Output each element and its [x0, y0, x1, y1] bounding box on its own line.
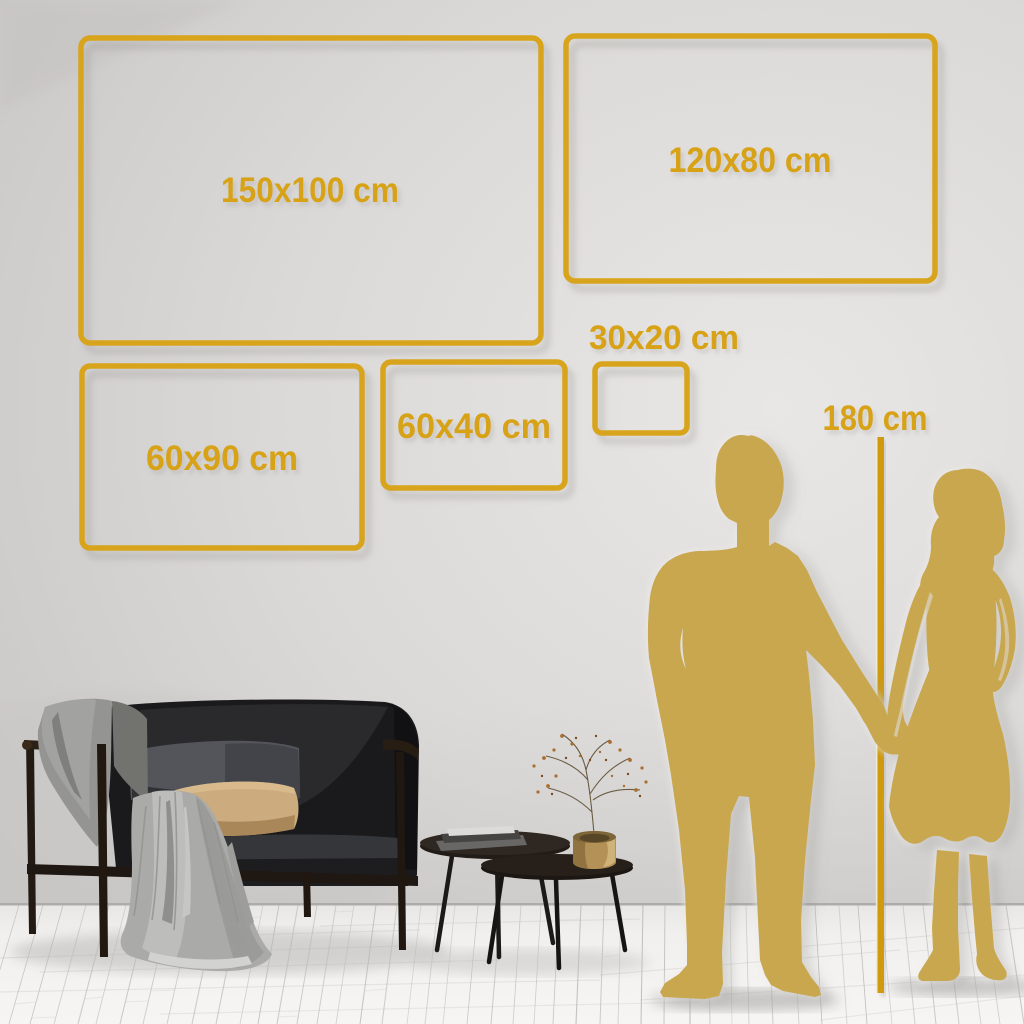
svg-text:60x90 cm: 60x90 cm [146, 438, 298, 478]
svg-text:180 cm: 180 cm [823, 398, 928, 438]
svg-text:30x20 cm: 30x20 cm [589, 319, 739, 357]
svg-text:120x80 cm: 120x80 cm [669, 140, 832, 180]
svg-text:60x40 cm: 60x40 cm [397, 406, 551, 446]
svg-text:150x100 cm: 150x100 cm [221, 170, 399, 210]
